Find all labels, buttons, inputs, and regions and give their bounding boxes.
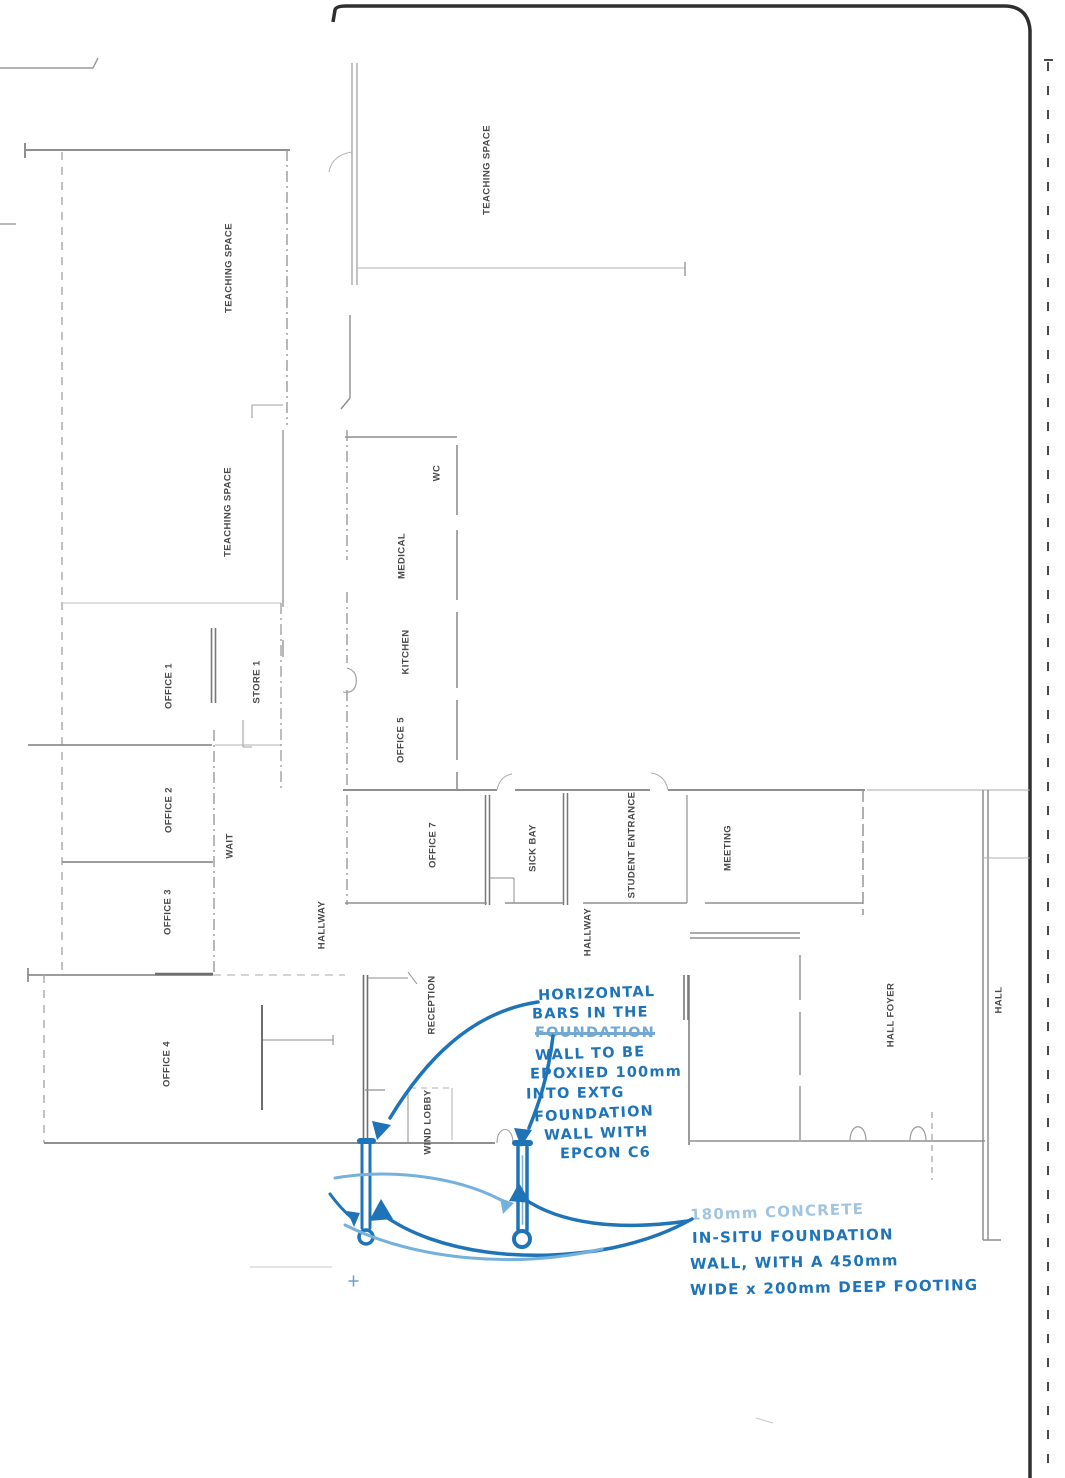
room-label-hall: HALL <box>994 987 1005 1014</box>
room-label-kitchen: KITCHEN <box>401 629 412 674</box>
room-label-office-7: OFFICE 7 <box>428 822 439 868</box>
sketched-foundation-walls <box>359 1141 530 1247</box>
room-label-office-3: OFFICE 3 <box>163 889 174 935</box>
room-label-office-1: OFFICE 1 <box>164 663 175 709</box>
handwritten-note-footing: 180mm CONCRETEIN-SITU FOUNDATIONWALL, WI… <box>690 1196 1030 1300</box>
handwritten-note-epoxy: HORIZONTALBARS IN THEFOUNDATIONWALL TO B… <box>532 983 707 1163</box>
room-label-reception: RECEPTION <box>427 975 438 1034</box>
room-label-teaching-space: TEACHING SPACE <box>223 467 234 557</box>
scanned-floor-plan-page: TEACHING SPACETEACHING SPACETEACHING SPA… <box>0 0 1065 1478</box>
room-label-medical: MEDICAL <box>397 533 408 579</box>
room-label-meeting: MEETING <box>723 825 734 871</box>
sheet-edge-dashed-line <box>1044 60 1053 1478</box>
note-line: BARS IN THE <box>532 1001 707 1024</box>
note-line: EPCON C6 <box>560 1142 707 1165</box>
note-line: WIDE x 200mm DEEP FOOTING <box>690 1271 1030 1303</box>
room-label-office-5: OFFICE 5 <box>396 717 407 763</box>
room-label-store-1: STORE 1 <box>252 660 263 703</box>
room-label-teaching-space: TEACHING SPACE <box>482 125 493 215</box>
room-label-office-4: OFFICE 4 <box>162 1041 173 1087</box>
room-label-hall-foyer: HALL FOYER <box>886 983 897 1048</box>
room-label-teaching-space: TEACHING SPACE <box>224 223 235 313</box>
room-label-wc: WC <box>432 465 443 482</box>
room-label-student-entrance: STUDENT ENTRANCE <box>627 792 638 899</box>
room-label-wind-lobby: WIND LOBBY <box>423 1089 434 1154</box>
room-label-office-2: OFFICE 2 <box>164 787 175 833</box>
room-label-sick-bay: SICK BAY <box>528 824 539 872</box>
room-label-wait: WAIT <box>225 833 236 858</box>
room-label-hallway: HALLWAY <box>317 901 328 949</box>
room-label-hallway: HALLWAY <box>583 908 594 956</box>
